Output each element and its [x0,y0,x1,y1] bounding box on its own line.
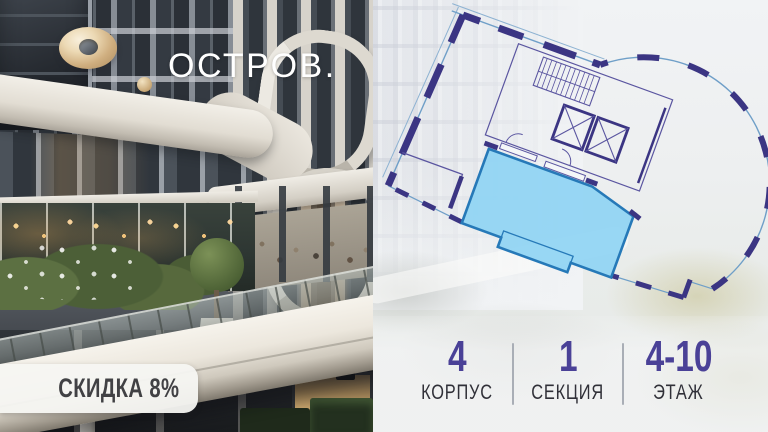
stat-section: 1 СЕКЦИЯ [514,333,623,419]
street-planter-2 [240,408,310,432]
stat-section-label: СЕКЦИЯ [532,382,605,404]
stat-floor-label: ЭТАЖ [653,382,703,404]
brand-logo-text: ОСТРОВ. [168,49,337,83]
street-planter [310,398,373,432]
logo-ring-hole [79,39,98,55]
ball-tree [190,238,244,292]
stat-building-value: 4 [448,335,467,379]
floor-plan-panel: 4 КОРПУС 1 СЕКЦИЯ 4-10 ЭТАЖ [373,0,768,432]
logo-ring-icon [59,27,117,69]
white-flower-bed [2,242,142,300]
discount-badge: СКИДКА 8% [0,364,198,413]
discount-badge-label: СКИДКА 8% [58,373,179,404]
building-photo: ОСТРОВ. СКИДКА 8% [0,0,373,432]
unit-stats: 4 КОРПУС 1 СЕКЦИЯ 4-10 ЭТАЖ [403,333,733,419]
stat-floor-value: 4-10 [645,335,712,379]
stat-section-value: 1 [559,335,578,379]
stat-building-label: КОРПУС [421,382,493,404]
real-estate-banner[interactable]: ОСТРОВ. СКИДКА 8% [0,0,768,432]
logo-dot-icon [137,77,152,92]
stat-floor: 4-10 ЭТАЖ [624,333,733,419]
stat-building: 4 КОРПУС [403,333,512,419]
